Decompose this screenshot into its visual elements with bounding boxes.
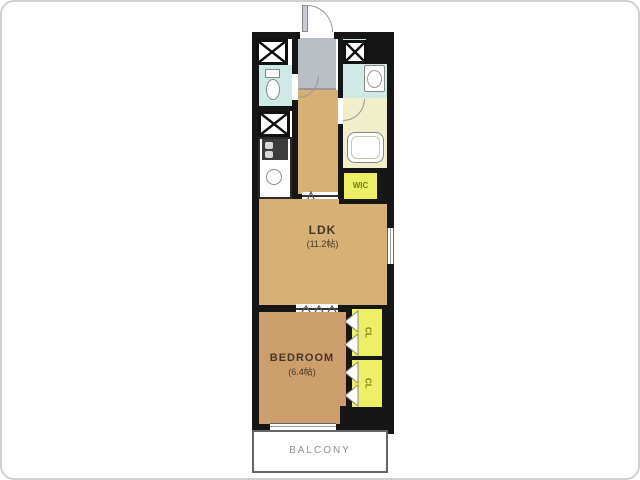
ldk-label: LDK: [258, 224, 387, 237]
stove-burner-icon: [265, 151, 273, 158]
floorplan-canvas: LDK (11.2帖) BEDROOM (6.4帖) WIC CL CL BAL…: [0, 0, 640, 480]
stove-burner-icon: [265, 142, 273, 149]
window-line: [270, 426, 336, 427]
pipe-shaft-x-icon: [256, 39, 288, 65]
washbasin-bowl-icon: [367, 70, 382, 88]
room-ldk: [258, 199, 387, 305]
wall: [252, 305, 296, 312]
cl-lower-label: CL: [363, 368, 372, 398]
wall: [292, 38, 298, 74]
wall: [366, 38, 387, 64]
room-hallway: [298, 90, 338, 199]
entrance-door-arc-icon: [307, 5, 333, 32]
wall: [292, 100, 298, 199]
toilet-bowl-icon: [266, 79, 280, 100]
kitchen-sink-icon: [266, 169, 282, 185]
bathtub-inner-line: [351, 136, 380, 159]
wall: [292, 194, 302, 199]
wall: [338, 194, 343, 199]
bedroom-label: BEDROOM: [258, 352, 346, 364]
pipe-shaft-x-icon: [258, 111, 290, 137]
cl-upper-label: CL: [363, 317, 372, 347]
window-line: [390, 228, 391, 264]
balcony-label: BALCONY: [252, 445, 388, 456]
wic-label: WIC: [344, 182, 377, 191]
sliding-door-line: [296, 308, 338, 310]
pipe-shaft-x-icon: [343, 40, 367, 64]
ldk-size-label: (11.2帖): [258, 240, 387, 250]
sliding-door-line: [302, 195, 338, 197]
toilet-icon: [265, 69, 280, 78]
bedroom-size-label: (6.4帖): [258, 368, 346, 378]
